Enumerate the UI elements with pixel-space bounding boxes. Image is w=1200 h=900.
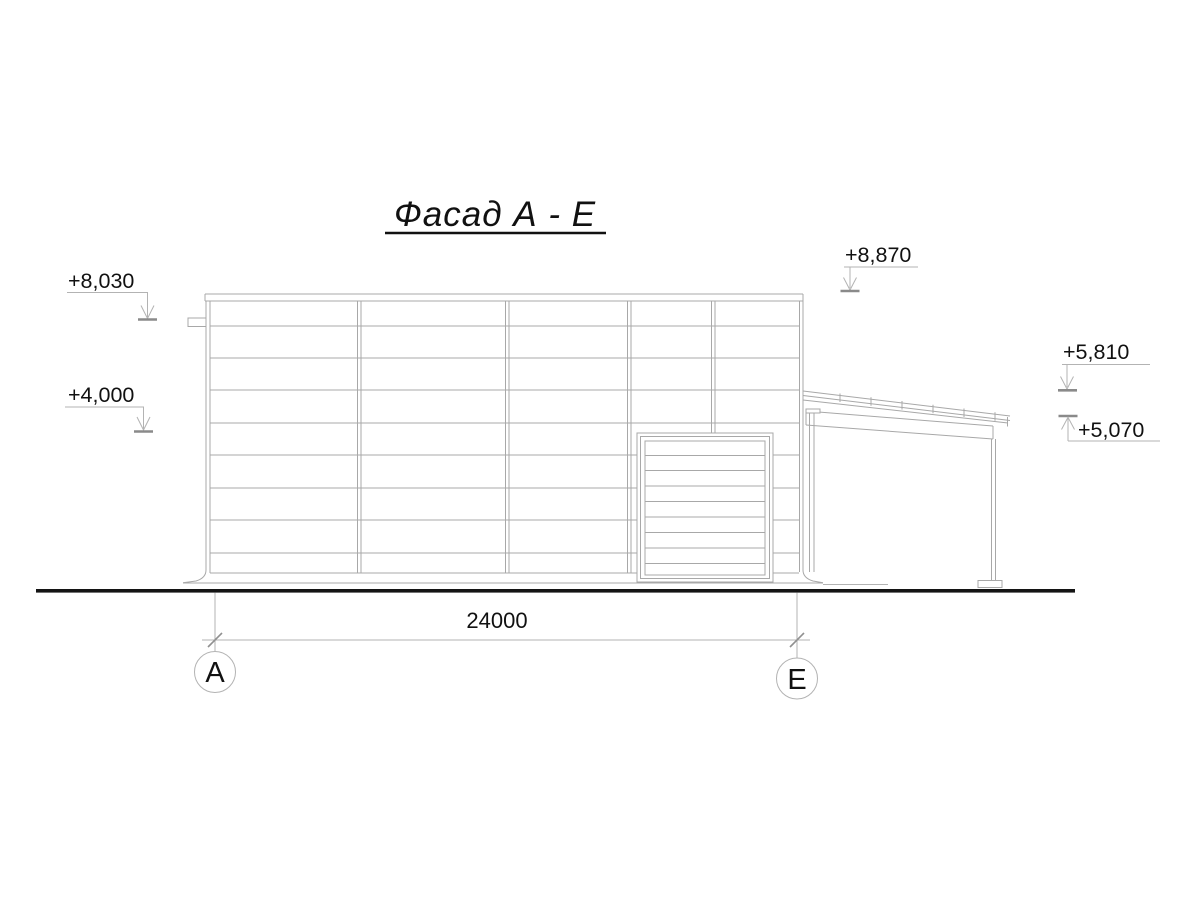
plinth-flare-right: [803, 570, 823, 583]
elevation-mark-roof-top: +8,870: [841, 243, 919, 291]
post-base-plate: [978, 581, 1002, 588]
elevation-drawing-sheet: 24000 А Е +8,030 +4,000 +8,870: [0, 0, 1200, 900]
page-title: Фасад А - Е: [394, 195, 596, 234]
elevation-value: +8,870: [845, 243, 911, 267]
parapet-band: [205, 294, 803, 301]
post-cap-left: [806, 409, 820, 413]
axis-label-a: А: [205, 657, 225, 689]
drawing-title: Фасад А - Е: [385, 195, 606, 234]
elevation-value: +8,030: [68, 269, 134, 293]
elevation-mark-canopy-low: +5,070: [1059, 416, 1161, 442]
dimension-value: 24000: [466, 608, 527, 633]
main-building: [183, 294, 888, 585]
beam-bottom-line: [806, 425, 993, 439]
elevation-mark-canopy-high: +5,810: [1058, 340, 1150, 390]
elevation-value: +5,070: [1078, 418, 1144, 442]
downspout-outlet: [188, 318, 206, 327]
roof-sheet-mid-line: [803, 396, 1010, 421]
ground-line: [36, 589, 1075, 593]
elevation-marks: +8,030 +4,000 +8,870 +5,810: [65, 243, 1160, 442]
dimension-and-axes: 24000 А Е: [195, 593, 818, 700]
axis-label-e: Е: [787, 664, 806, 696]
sectional-door: [637, 433, 773, 582]
elevation-value: +5,810: [1063, 340, 1129, 364]
canopy: [803, 391, 1010, 588]
facade-a-e-drawing: 24000 А Е +8,030 +4,000 +8,870: [0, 0, 1200, 900]
plinth: [183, 570, 888, 585]
elevation-mark-left-parapet: +8,030: [67, 269, 157, 320]
elevation-value: +4,000: [68, 383, 134, 407]
plinth-flare-left: [183, 570, 206, 583]
elevation-mark-left-mid: +4,000: [65, 383, 153, 432]
